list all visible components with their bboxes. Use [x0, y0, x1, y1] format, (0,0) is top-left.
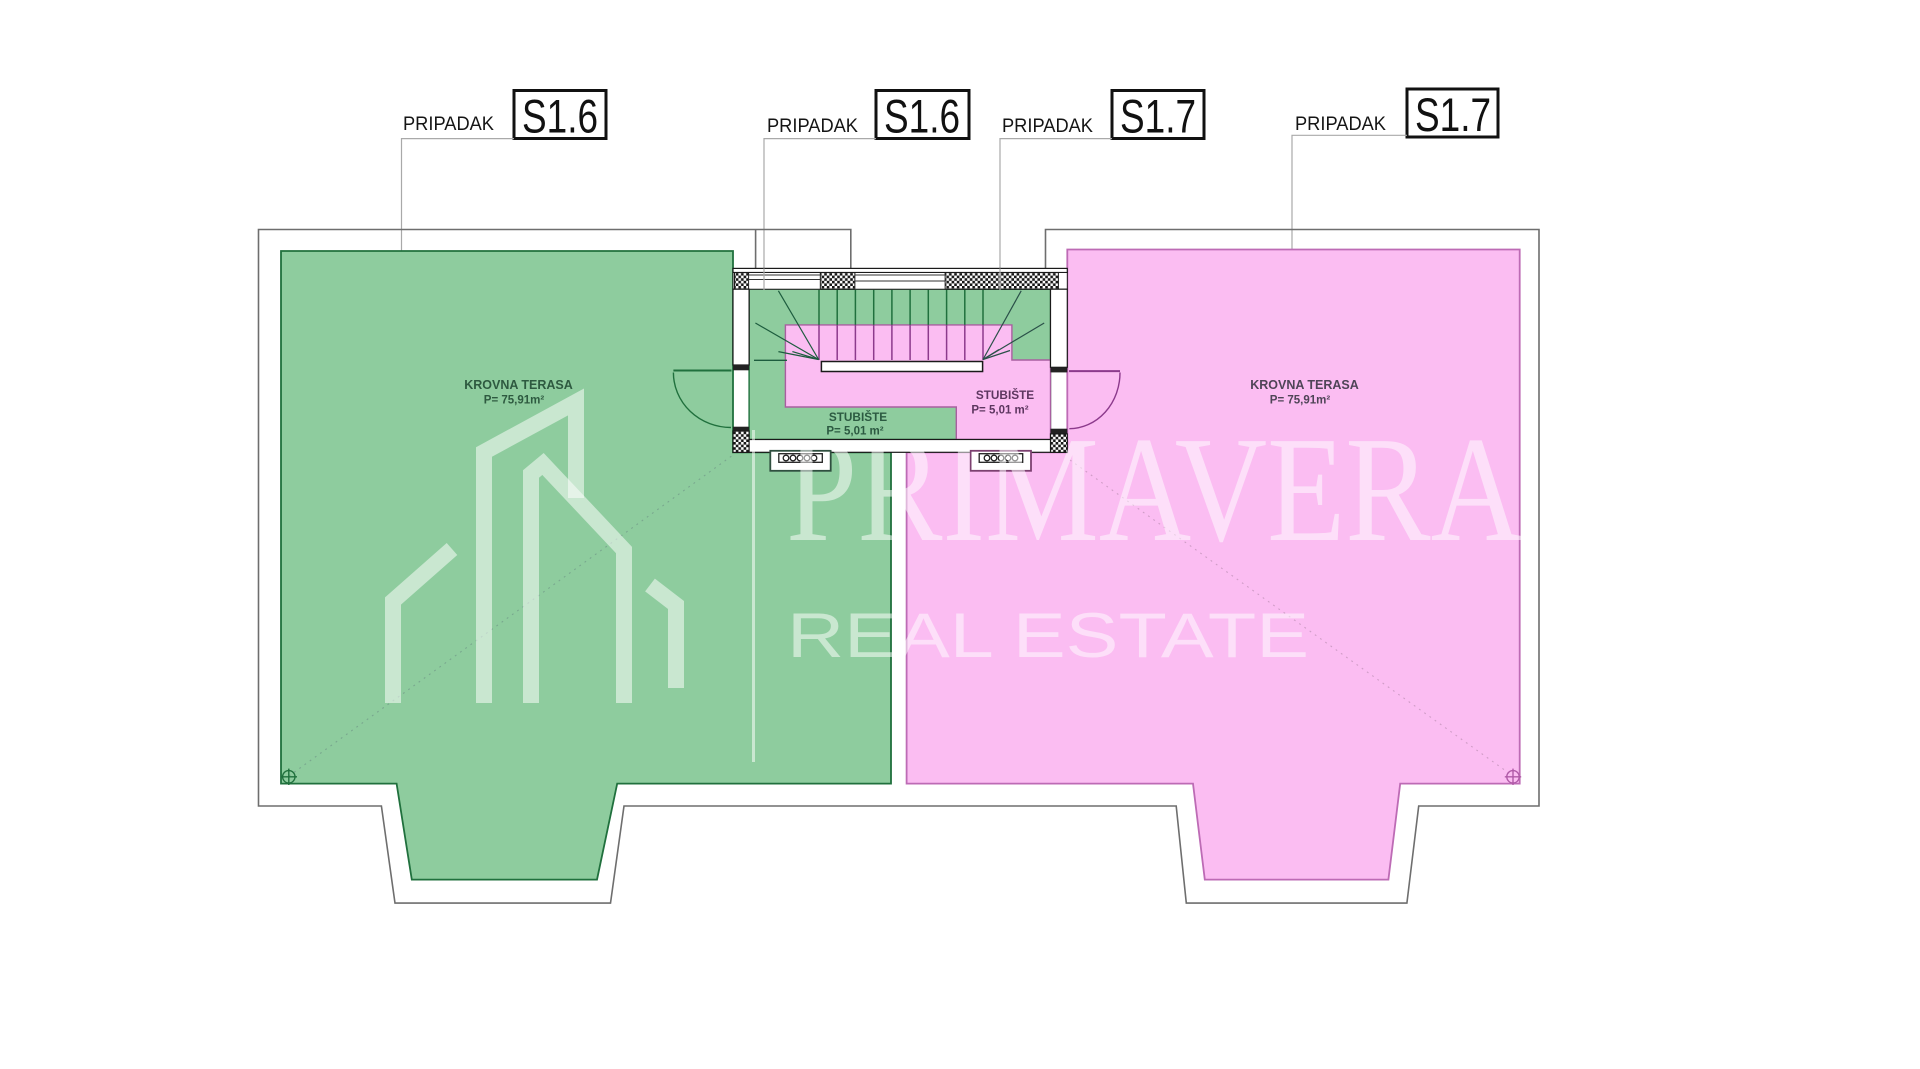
- svg-text:S1.7: S1.7: [1415, 88, 1491, 141]
- svg-text:S1.7: S1.7: [1120, 90, 1196, 143]
- svg-text:PRIPADAK: PRIPADAK: [767, 116, 858, 137]
- svg-text:S1.6: S1.6: [522, 90, 598, 143]
- svg-text:KROVNA TERASA: KROVNA TERASA: [1250, 378, 1359, 392]
- svg-text:KROVNA TERASA: KROVNA TERASA: [464, 378, 573, 392]
- svg-text:PRIPADAK: PRIPADAK: [1002, 116, 1093, 137]
- svg-text:PRIPADAK: PRIPADAK: [403, 114, 494, 135]
- svg-text:PRIPADAK: PRIPADAK: [1295, 114, 1386, 135]
- svg-text:REAL ESTATE: REAL ESTATE: [787, 601, 1309, 671]
- svg-text:PRIMAVERA: PRIMAVERA: [786, 405, 1523, 573]
- svg-text:P= 75,91m²: P= 75,91m²: [484, 395, 545, 407]
- svg-text:S1.6: S1.6: [884, 90, 960, 143]
- svg-text:STUBIŠTE: STUBIŠTE: [976, 388, 1034, 402]
